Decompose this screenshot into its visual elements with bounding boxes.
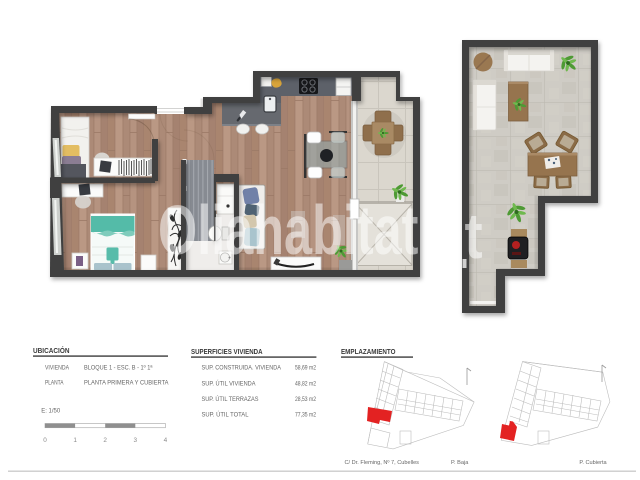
svg-text:PLANTA PRIMERA Y CUBIERTA: PLANTA PRIMERA Y CUBIERTA [84,381,169,387]
svg-text:2: 2 [103,437,107,444]
svg-text:P. Baja: P. Baja [451,460,469,466]
svg-text:P. Cubierta: P. Cubierta [579,460,607,466]
svg-text:SUP. ÚTIL TERRAZAS: SUP. ÚTIL TERRAZAS [202,396,259,403]
svg-text:3: 3 [134,437,138,444]
svg-text:1: 1 [73,437,77,444]
svg-text:Oliahabitat: Oliahabitat [158,191,418,269]
svg-text:0: 0 [43,437,47,444]
svg-text:PLANTA: PLANTA [45,381,64,387]
svg-text:4: 4 [164,437,168,444]
svg-text:t: t [465,200,483,272]
svg-text:SUP. ÚTIL VIVIENDA: SUP. ÚTIL VIVIENDA [202,380,256,387]
svg-text:EMPLAZAMIENTO: EMPLAZAMIENTO [341,347,396,356]
svg-text:VIVIENDA: VIVIENDA [45,365,69,371]
svg-text:SUP. CONSTRUIDA. VIVIENDA: SUP. CONSTRUIDA. VIVIENDA [202,365,282,371]
svg-text:SUPERFICIES VIVIENDA: SUPERFICIES VIVIENDA [191,347,263,356]
svg-text:SUP. ÚTIL TOTAL: SUP. ÚTIL TOTAL [202,412,250,419]
svg-text:28,53 m2: 28,53 m2 [295,397,317,403]
svg-text:BLOQUE 1 - ESC. B - 1º 1ª: BLOQUE 1 - ESC. B - 1º 1ª [84,364,153,371]
svg-text:48,82 m2: 48,82 m2 [295,381,317,387]
svg-text:77,35 m2: 77,35 m2 [295,413,317,419]
svg-text:C/ Dr. Fleming, Nº 7, Cubelles: C/ Dr. Fleming, Nº 7, Cubelles [345,459,420,466]
svg-text:E: 1/50: E: 1/50 [41,409,61,415]
svg-text:58,69 m2: 58,69 m2 [295,365,317,371]
svg-text:UBICACIÓN: UBICACIÓN [33,346,70,355]
